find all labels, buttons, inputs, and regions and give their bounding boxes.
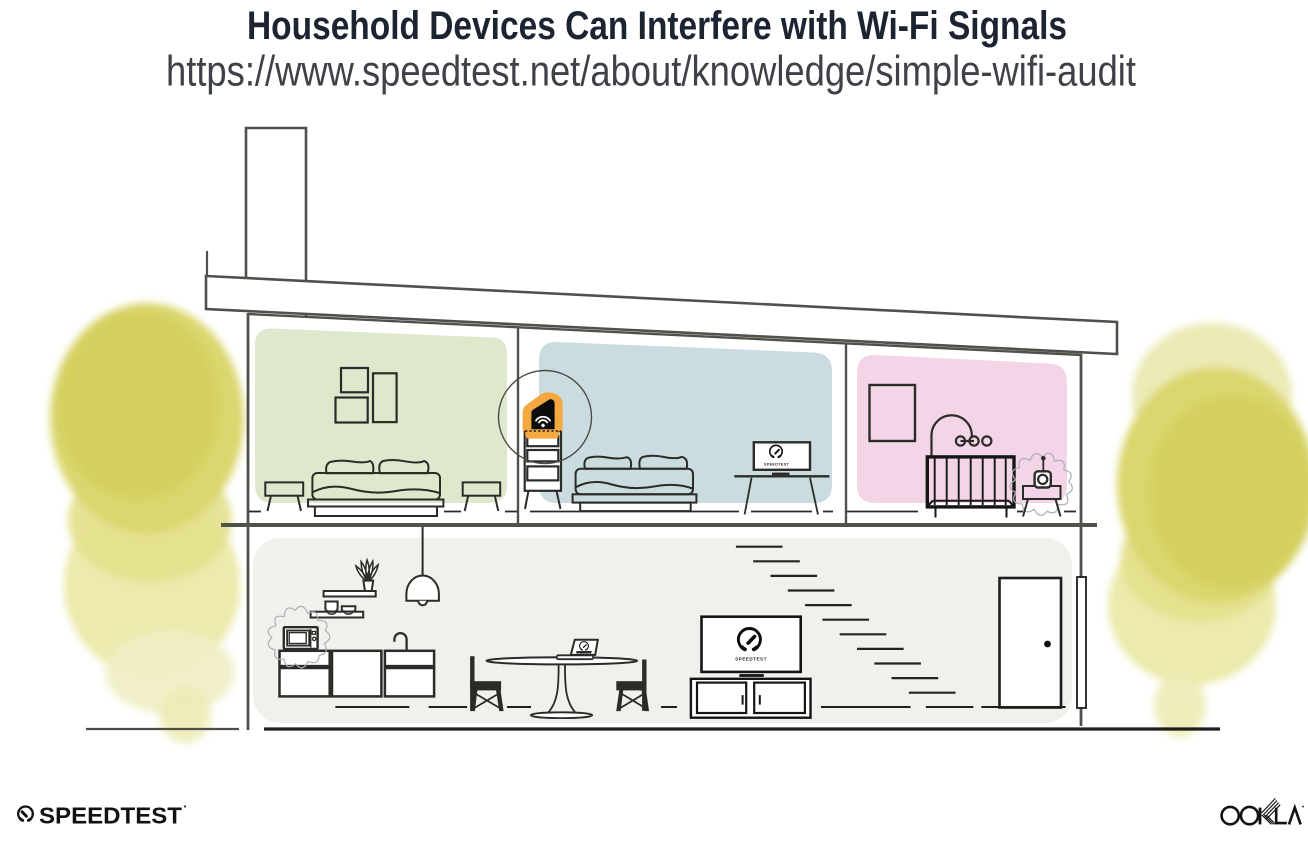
svg-text:Household Devices Can Interfer: Household Devices Can Interfere with Wi-… [247,4,1067,48]
svg-text:SPEEDTEST: SPEEDTEST [764,463,789,467]
svg-text:https://www.speedtest.net/abou: https://www.speedtest.net/about/knowledg… [166,48,1136,96]
svg-text:SPEEDTEST: SPEEDTEST [39,803,183,829]
svg-text:SPEEDTEST: SPEEDTEST [735,657,767,662]
svg-text:SPEEDTEST: SPEEDTEST [577,652,592,654]
